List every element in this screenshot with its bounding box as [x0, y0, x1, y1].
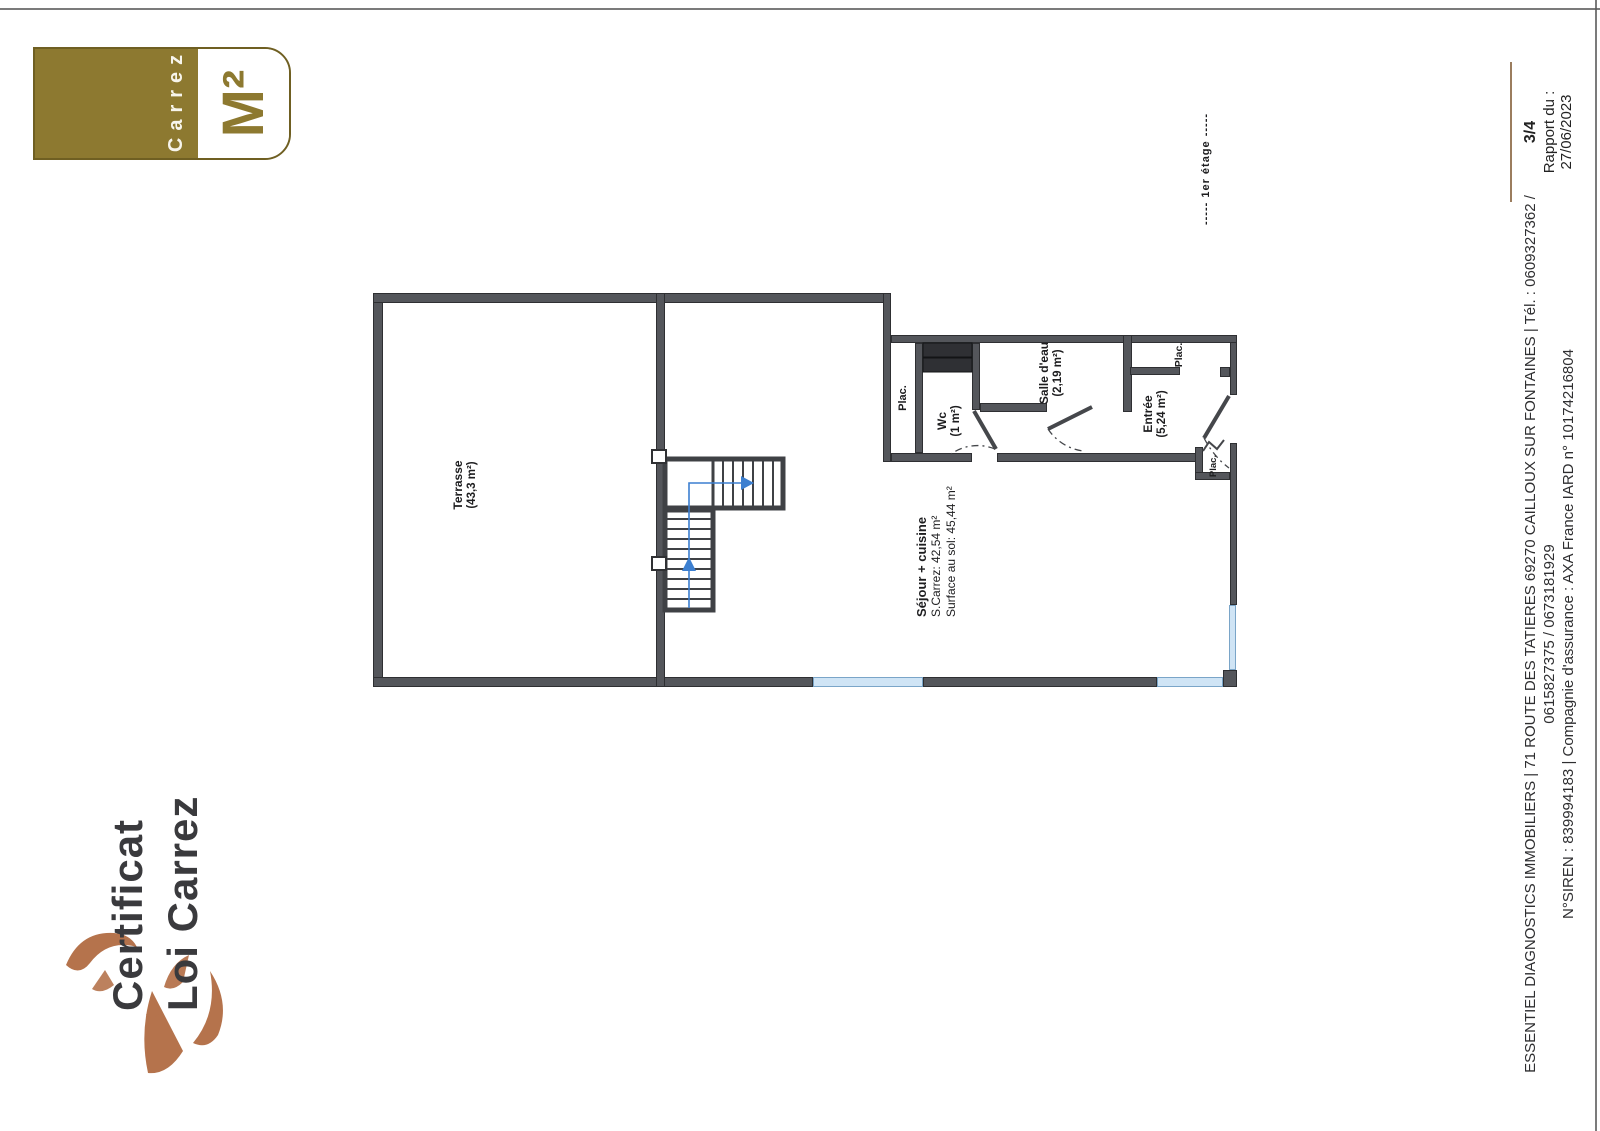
report-date-label: Rapport du :	[1541, 58, 1558, 206]
carrez-m2-logo: Carrez M²	[33, 47, 291, 160]
door-swing	[1048, 429, 1083, 451]
title-line-1: Certificat	[100, 796, 155, 1011]
footer-line-2: 0615827375 / 0673181929	[1540, 137, 1559, 1131]
page-number: 3/4	[1521, 58, 1541, 206]
fixture	[923, 343, 972, 357]
scan-edge-line	[0, 8, 1600, 10]
rotated-document: Carrez M² Certificat Loi Carrez	[0, 0, 1600, 1131]
room-label-terrasse: Terrasse (43,3 m²)	[451, 460, 479, 509]
wall-post	[652, 557, 666, 570]
page-title: Certificat Loi Carrez	[100, 796, 210, 1011]
report-rule	[1510, 62, 1512, 202]
logo-brand-text: Carrez	[165, 48, 188, 152]
room-label-placard-1: Plac.	[896, 385, 910, 411]
floor-tag: ----- 1er étage -----	[1200, 69, 1212, 269]
footer-line-3: N°SIREN : 839994183 | Compagnie d'assura…	[1559, 137, 1578, 1131]
wall-post	[652, 450, 666, 463]
door-entrance	[1204, 396, 1229, 438]
floor-plan: Terrasse (43,3 m²) Séjour + cuisine S.Ca…	[373, 293, 1237, 687]
scan-edge-line	[1595, 0, 1597, 1131]
plan-symbols	[373, 293, 1237, 687]
report-date: 27/06/2023	[1558, 58, 1575, 206]
footer: ESSENTIEL DIAGNOSTICS IMMOBILIERS | 71 R…	[1521, 137, 1578, 1131]
door-wc	[974, 411, 996, 449]
room-label-sejour: Séjour + cuisine S.Carrez: 42,54 m² Surf…	[914, 486, 959, 617]
fixture	[923, 358, 972, 372]
room-label-entree: Entrée (5,24 m²)	[1141, 390, 1169, 437]
room-label-placard-3: Plac.	[1207, 455, 1221, 477]
logo-gold-panel: Carrez	[35, 49, 198, 158]
door-swing	[951, 446, 995, 454]
logo-unit-panel: M²	[198, 49, 289, 158]
report-info: 3/4 Rapport du : 27/06/2023	[1510, 58, 1575, 206]
certificate-page: Carrez M² Certificat Loi Carrez	[0, 0, 1600, 1131]
door-salle-eau	[1048, 407, 1092, 429]
title-line-2: Loi Carrez	[155, 796, 210, 1011]
footer-line-1: ESSENTIEL DIAGNOSTICS IMMOBILIERS | 71 R…	[1521, 137, 1540, 1131]
logo-m2-text: M²	[215, 70, 273, 138]
room-label-wc: Wc (1 m²)	[935, 405, 963, 436]
room-label-placard-2: Plac.	[1172, 343, 1186, 368]
room-label-salle-eau: Salle d'eau (2,19 m²)	[1037, 342, 1065, 404]
